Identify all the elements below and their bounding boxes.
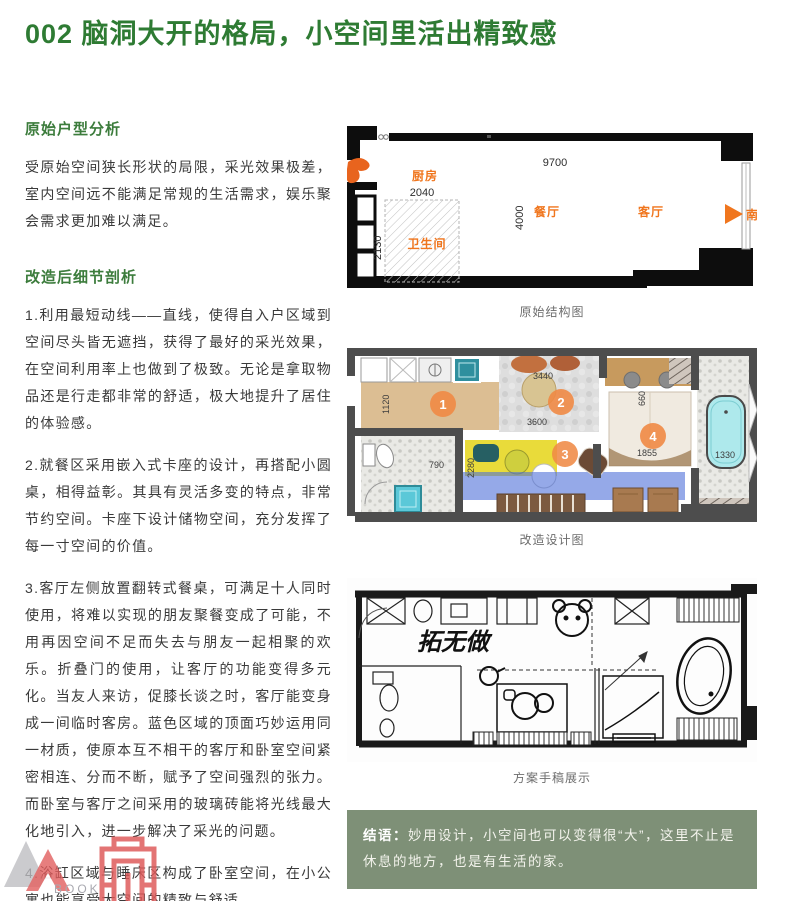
closet-sketch bbox=[677, 598, 739, 622]
marker-3: 3 bbox=[561, 447, 568, 462]
redesign-plan-caption: 改造设计图 bbox=[347, 531, 757, 548]
original-plan-figure: 厨房 2040 卫生间 2130 9700 4000 餐厅 客厅 南 原始结构图 bbox=[347, 126, 757, 320]
kitchen-appliance-row bbox=[361, 358, 480, 382]
south-window bbox=[742, 163, 750, 249]
text-column: 原始户型分析 受原始空间狭长形状的局限，采光效果极差，室内空间远不能满足常规的生… bbox=[25, 118, 332, 901]
bathroom-label: 卫生间 bbox=[407, 236, 446, 251]
marker-2: 2 bbox=[557, 395, 564, 410]
banquette-dim: 2280 bbox=[466, 458, 476, 478]
corridor-dim: 3600 bbox=[527, 417, 547, 427]
conclusion-text: 妙用设计，小空间也可以变得很“大”，这里不止是休息的地方，也是有生活的家。 bbox=[363, 828, 735, 869]
sketch-signature: 拓无做 bbox=[417, 629, 493, 656]
bed-dim: 1855 bbox=[637, 448, 657, 458]
conclusion-label: 结语： bbox=[363, 828, 408, 843]
total-width-dim: 9700 bbox=[543, 157, 567, 169]
table-dim: 3440 bbox=[533, 371, 553, 381]
redesign-plan-figure: 1120 3600 3440 2280 790 1855 1330 660 1 … bbox=[347, 348, 757, 548]
living-label: 客厅 bbox=[637, 204, 664, 219]
paragraph-detail-3: 3.客厅左侧放置翻转式餐桌，可满足十人同时使用，将难以实现的朋友聚餐变成了可能，… bbox=[25, 575, 332, 845]
sofa-sketch bbox=[473, 732, 591, 745]
closet-sketch-2 bbox=[677, 718, 737, 740]
marker-4: 4 bbox=[649, 429, 657, 444]
paragraph-detail-2: 2.就餐区采用嵌入式卡座的设计，再搭配小圆桌，相得益彰。其具有灵活多变的特点，非… bbox=[25, 452, 332, 560]
depth-dim: 4000 bbox=[514, 206, 526, 230]
sketch-figure: 拓无做 方案手稿展示 bbox=[347, 578, 757, 786]
paragraph-detail-1: 1.利用最短动线——直线，使得自入户区域到空间尽头皆无遮挡，获得了最好的采光效果… bbox=[25, 302, 332, 437]
dining-label: 餐厅 bbox=[534, 204, 560, 219]
paragraph-original-analysis: 受原始空间狭长形状的局限，采光效果极差，室内空间远不能满足常规的生活需求，娱乐聚… bbox=[25, 154, 332, 235]
section-heading-original-analysis: 原始户型分析 bbox=[25, 118, 332, 139]
bathroom-dim: 790 bbox=[429, 460, 444, 470]
wall-step-top bbox=[731, 584, 757, 594]
original-plan-caption: 原始结构图 bbox=[347, 303, 757, 320]
sketch-floor-plan: 拓无做 bbox=[347, 578, 757, 762]
paragraph-detail-4: 4.浴缸区域与睡床区构成了卧室空间，在小公寓也能享受大空间的精致与舒适。 bbox=[25, 860, 332, 901]
article-page: 002 脑洞大开的格局，小空间里活出精致感 原始户型分析 受原始空间狭长形状的局… bbox=[0, 0, 790, 901]
bathtub-dim: 1330 bbox=[715, 450, 735, 460]
original-floor-plan: 厨房 2040 卫生间 2130 9700 4000 餐厅 客厅 南 bbox=[347, 126, 757, 296]
entry-dim: 1120 bbox=[381, 395, 391, 414]
redesign-floor-plan: 1120 3600 3440 2280 790 1855 1330 660 1 … bbox=[347, 348, 757, 524]
conclusion-box: 结语：妙用设计，小空间也可以变得很“大”，这里不止是休息的地方，也是有生活的家。 bbox=[347, 810, 757, 889]
bed-width-dim: 660 bbox=[637, 391, 647, 406]
sketch-caption: 方案手稿展示 bbox=[347, 769, 757, 786]
marker-1: 1 bbox=[439, 397, 446, 412]
south-label: 南 bbox=[746, 207, 757, 222]
kitchen-label: 厨房 bbox=[412, 168, 438, 183]
page-title: 002 脑洞大开的格局，小空间里活出精致感 bbox=[25, 12, 765, 51]
bathroom-depth-dim: 2130 bbox=[372, 236, 384, 260]
wall-step bbox=[744, 706, 757, 740]
section-heading-renovation-details: 改造后细节剖析 bbox=[25, 266, 332, 287]
kitchen-width-dim: 2040 bbox=[410, 187, 434, 199]
